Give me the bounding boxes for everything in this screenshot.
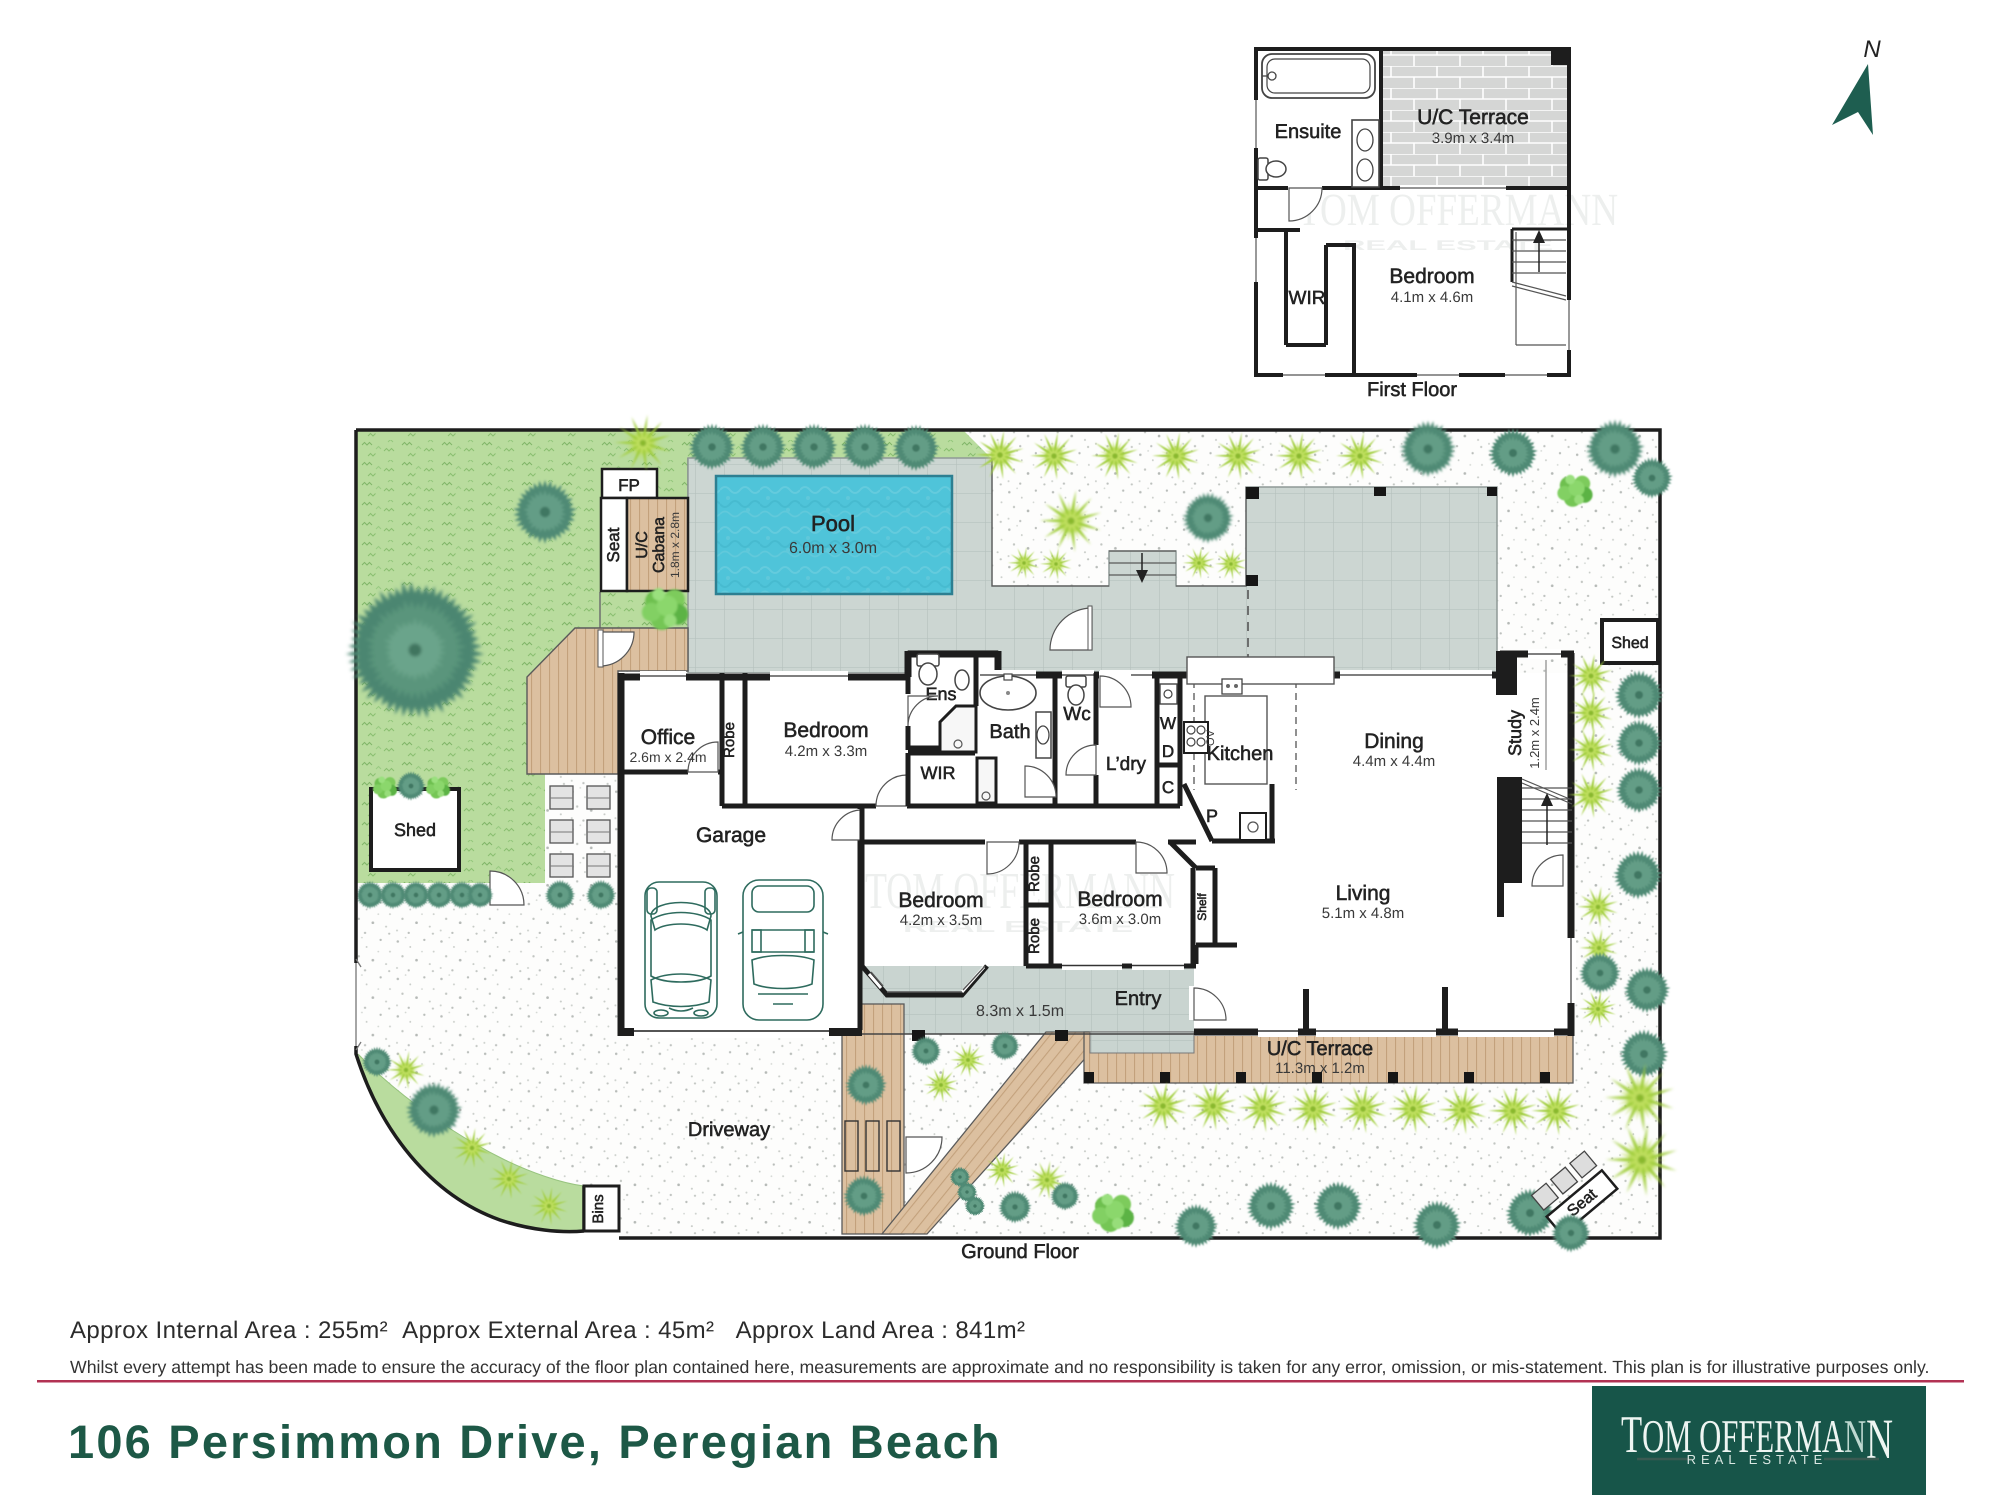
svg-text:REAL ESTATE: REAL ESTATE — [1687, 1452, 1828, 1467]
svg-text:1.8m x 2.8m: 1.8m x 2.8m — [668, 512, 682, 578]
svg-text:Bedroom: Bedroom — [1077, 888, 1162, 911]
svg-text:Entry: Entry — [1115, 988, 1162, 1010]
svg-text:Seat: Seat — [604, 527, 623, 562]
svg-text:Bath: Bath — [989, 721, 1030, 743]
svg-text:U/C Terrace: U/C Terrace — [1267, 1038, 1373, 1060]
svg-text:Robe: Robe — [721, 722, 738, 758]
svg-text:3.6m x 3.0m: 3.6m x 3.0m — [1079, 911, 1162, 928]
svg-text:Study: Study — [1505, 710, 1525, 756]
svg-text:5.1m x 4.8m: 5.1m x 4.8m — [1322, 905, 1405, 922]
svg-text:L’dry: L’dry — [1106, 754, 1147, 775]
svg-text:Ens: Ens — [925, 684, 956, 704]
svg-text:Bedroom: Bedroom — [1389, 265, 1474, 288]
svg-text:Pool: Pool — [811, 511, 855, 536]
svg-text:4.4m x 4.4m: 4.4m x 4.4m — [1353, 753, 1436, 770]
svg-text:Shelf: Shelf — [1195, 893, 1209, 921]
svg-text:First Floor: First Floor — [1367, 379, 1457, 401]
svg-text:U/C Terrace: U/C Terrace — [1417, 106, 1529, 129]
svg-text:Living: Living — [1336, 882, 1391, 905]
svg-text:N: N — [1863, 36, 1881, 63]
svg-text:Robe: Robe — [1026, 856, 1043, 892]
svg-text:106 Persimmon Drive, Peregian: 106 Persimmon Drive, Peregian Beach — [68, 1415, 1002, 1468]
svg-text:Bedroom: Bedroom — [898, 889, 983, 912]
svg-text:C: C — [1162, 778, 1174, 797]
svg-text:6.0m x 3.0m: 6.0m x 3.0m — [789, 540, 877, 557]
svg-text:Kitchen: Kitchen — [1207, 743, 1274, 765]
svg-text:1.2m x 2.4m: 1.2m x 2.4m — [1527, 697, 1542, 769]
svg-text:Cabana: Cabana — [651, 517, 668, 573]
svg-text:Shed: Shed — [1611, 635, 1648, 652]
svg-text:P: P — [1206, 806, 1218, 826]
svg-text:4.2m x 3.5m: 4.2m x 3.5m — [900, 912, 983, 929]
svg-text:Shed: Shed — [394, 820, 436, 840]
svg-text:Bins: Bins — [590, 1194, 607, 1223]
svg-text:U/C: U/C — [634, 531, 651, 559]
svg-text:Bedroom: Bedroom — [783, 719, 868, 742]
svg-text:3.9m x 3.4m: 3.9m x 3.4m — [1432, 130, 1515, 147]
svg-text:FP: FP — [618, 476, 640, 495]
svg-text:Garage: Garage — [696, 824, 766, 847]
svg-text:WIR: WIR — [1289, 288, 1326, 309]
svg-text:Dining: Dining — [1364, 730, 1424, 753]
svg-text:2.6m x 2.4m: 2.6m x 2.4m — [629, 749, 706, 765]
svg-text:Ensuite: Ensuite — [1275, 121, 1342, 143]
svg-text:4.1m x 4.6m: 4.1m x 4.6m — [1391, 289, 1474, 306]
svg-text:Approx Internal Area : 255m²: Approx Internal Area : 255m² Approx Exte… — [70, 1317, 1025, 1344]
svg-text:4.2m x 3.3m: 4.2m x 3.3m — [785, 743, 868, 760]
svg-text:Robe: Robe — [1026, 918, 1043, 954]
svg-text:8.3m x 1.5m: 8.3m x 1.5m — [976, 1003, 1064, 1020]
svg-text:Ground Floor: Ground Floor — [961, 1241, 1079, 1263]
svg-text:D: D — [1162, 742, 1174, 761]
svg-text:WIR: WIR — [921, 763, 956, 783]
svg-text:W: W — [1160, 714, 1176, 733]
svg-text:Whilst every attempt has been: Whilst every attempt has been made to en… — [70, 1357, 1929, 1377]
svg-text:Driveway: Driveway — [688, 1119, 770, 1141]
svg-text:Office: Office — [641, 726, 695, 749]
svg-text:Wc: Wc — [1063, 704, 1090, 725]
